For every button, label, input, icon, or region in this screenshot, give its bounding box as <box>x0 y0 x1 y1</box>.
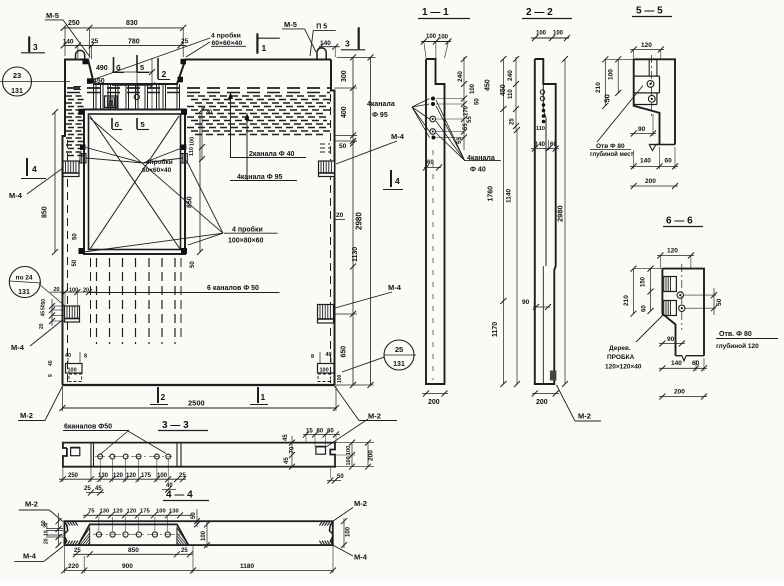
svg-text:175: 175 <box>140 509 150 515</box>
svg-text:1760: 1760 <box>488 186 495 202</box>
svg-text:220: 220 <box>68 563 79 570</box>
svg-text:25: 25 <box>91 38 99 45</box>
svg-text:3: 3 <box>33 42 38 52</box>
svg-text:Отв Ф 80: Отв Ф 80 <box>596 143 625 150</box>
svg-text:60: 60 <box>665 158 673 165</box>
svg-text:100: 100 <box>68 368 77 374</box>
svg-text:200: 200 <box>674 389 685 396</box>
svg-text:60: 60 <box>550 142 557 148</box>
svg-text:50: 50 <box>41 299 47 305</box>
svg-text:120: 120 <box>113 473 124 479</box>
svg-text:55: 55 <box>463 123 469 130</box>
svg-text:60×60×40: 60×60×40 <box>142 167 172 174</box>
svg-text:2 — 2: 2 — 2 <box>526 7 553 18</box>
svg-text:ПРОБКА: ПРОБКА <box>607 354 635 361</box>
svg-text:100: 100 <box>553 31 564 37</box>
svg-text:5 — 5: 5 — 5 <box>636 6 663 17</box>
svg-text:100: 100 <box>201 530 207 541</box>
svg-text:60: 60 <box>642 305 648 312</box>
svg-text:100: 100 <box>426 34 437 40</box>
svg-text:П 5: П 5 <box>316 23 327 30</box>
svg-text:50: 50 <box>41 304 47 310</box>
svg-text:830: 830 <box>126 20 138 27</box>
svg-text:55: 55 <box>457 137 463 144</box>
svg-text:50: 50 <box>339 143 347 150</box>
svg-text:6каналов Ф50: 6каналов Ф50 <box>64 424 112 431</box>
svg-text:50: 50 <box>191 512 197 519</box>
svg-text:100: 100 <box>346 446 352 455</box>
svg-text:175: 175 <box>141 473 152 479</box>
svg-text:140: 140 <box>63 39 74 46</box>
svg-text:110: 110 <box>536 126 545 132</box>
svg-text:200: 200 <box>536 399 548 406</box>
svg-text:200: 200 <box>428 399 440 406</box>
svg-text:5: 5 <box>140 63 144 72</box>
svg-text:1180: 1180 <box>240 563 254 570</box>
svg-text:Отв. Ф 80: Отв. Ф 80 <box>719 331 752 338</box>
svg-text:25: 25 <box>181 548 188 554</box>
svg-text:М-5: М-5 <box>284 20 297 29</box>
svg-text:250: 250 <box>68 20 80 27</box>
svg-text:2канала Ф 40: 2канала Ф 40 <box>249 151 295 158</box>
svg-text:2: 2 <box>162 69 167 79</box>
svg-text:3: 3 <box>345 39 350 49</box>
svg-text:9: 9 <box>48 374 54 377</box>
svg-text:45: 45 <box>283 434 289 441</box>
svg-text:55: 55 <box>467 116 473 123</box>
svg-text:850: 850 <box>128 547 139 554</box>
svg-text:8: 8 <box>84 354 87 360</box>
svg-text:М-2: М-2 <box>25 500 38 509</box>
svg-text:М-4: М-4 <box>9 191 23 200</box>
svg-text:4канала Ф 95: 4канала Ф 95 <box>237 174 283 181</box>
svg-text:240: 240 <box>457 71 464 82</box>
svg-text:50: 50 <box>603 94 612 102</box>
svg-text:глубиной 120: глубиной 120 <box>716 342 759 350</box>
svg-text:50: 50 <box>72 259 78 266</box>
svg-text:4: 4 <box>32 164 37 174</box>
svg-text:б: б <box>115 120 120 129</box>
svg-text:М-4: М-4 <box>23 552 37 561</box>
svg-text:1130: 1130 <box>352 247 359 262</box>
svg-text:140: 140 <box>640 158 651 165</box>
svg-text:780: 780 <box>128 38 140 45</box>
svg-text:20: 20 <box>39 323 45 329</box>
svg-text:Ф 95: Ф 95 <box>372 112 388 119</box>
svg-text:120×120×40: 120×120×40 <box>605 364 642 371</box>
svg-text:25: 25 <box>510 118 516 125</box>
svg-text:М-4: М-4 <box>354 553 368 562</box>
svg-text:130: 130 <box>100 509 110 515</box>
svg-text:50: 50 <box>716 298 723 306</box>
svg-text:10: 10 <box>44 530 50 536</box>
svg-text:850: 850 <box>187 196 194 208</box>
svg-text:6 каналов Ф 50: 6 каналов Ф 50 <box>207 285 259 292</box>
svg-text:100: 100 <box>190 137 196 146</box>
svg-text:40: 40 <box>48 360 54 366</box>
svg-text:20: 20 <box>44 538 50 544</box>
svg-text:50: 50 <box>337 474 344 480</box>
svg-text:4канала: 4канала <box>367 101 395 108</box>
svg-text:1: 1 <box>261 392 266 402</box>
svg-text:4пробки: 4пробки <box>146 158 173 166</box>
svg-text:6 — 6: 6 — 6 <box>666 216 693 227</box>
svg-text:Дерев.: Дерев. <box>609 345 631 352</box>
svg-text:б: б <box>116 63 121 72</box>
svg-text:4: 4 <box>395 176 400 186</box>
svg-text:120: 120 <box>127 509 137 515</box>
svg-text:120: 120 <box>667 248 678 255</box>
svg-text:170: 170 <box>464 105 470 116</box>
svg-text:300: 300 <box>341 70 348 82</box>
svg-text:150: 150 <box>641 276 647 287</box>
svg-text:140: 140 <box>535 142 546 148</box>
svg-text:50: 50 <box>41 520 47 526</box>
svg-text:глубиной мест: глубиной мест <box>590 151 633 158</box>
svg-text:1: 1 <box>262 43 267 53</box>
svg-text:2980: 2980 <box>355 212 364 230</box>
svg-text:25: 25 <box>74 548 81 554</box>
svg-text:200: 200 <box>368 450 375 461</box>
svg-text:450: 450 <box>500 84 507 96</box>
svg-text:М-5: М-5 <box>46 11 59 20</box>
svg-text:25: 25 <box>84 486 91 492</box>
svg-text:М-2: М-2 <box>368 412 381 421</box>
svg-text:М-4: М-4 <box>11 343 25 352</box>
svg-text:100: 100 <box>337 374 343 383</box>
svg-text:4 пробки: 4 пробки <box>211 31 241 39</box>
svg-text:90: 90 <box>667 336 675 343</box>
svg-text:25: 25 <box>181 38 189 45</box>
svg-text:23: 23 <box>13 71 21 80</box>
svg-text:4 — 4: 4 — 4 <box>166 490 193 501</box>
svg-text:45: 45 <box>284 457 290 464</box>
svg-text:по 24: по 24 <box>16 275 33 282</box>
svg-text:45: 45 <box>41 311 47 317</box>
svg-text:30: 30 <box>206 110 212 116</box>
svg-text:120: 120 <box>113 509 123 515</box>
svg-text:240: 240 <box>507 70 514 81</box>
svg-text:200: 200 <box>645 178 656 185</box>
svg-text:М-4: М-4 <box>391 132 405 141</box>
svg-text:131: 131 <box>18 289 30 296</box>
svg-text:130: 130 <box>98 473 109 479</box>
svg-text:100: 100 <box>536 31 547 37</box>
svg-text:100: 100 <box>470 83 476 94</box>
svg-text:3 — 3: 3 — 3 <box>162 420 189 431</box>
svg-text:450: 450 <box>485 79 492 91</box>
svg-text:100: 100 <box>157 473 168 479</box>
svg-text:25: 25 <box>395 345 403 354</box>
svg-text:100: 100 <box>608 69 615 80</box>
svg-text:75: 75 <box>88 509 95 515</box>
svg-text:850: 850 <box>42 206 49 218</box>
svg-text:490: 490 <box>96 65 108 72</box>
svg-text:50: 50 <box>475 98 481 105</box>
svg-text:8: 8 <box>311 354 314 360</box>
svg-text:2: 2 <box>161 392 166 402</box>
svg-text:60×60×40: 60×60×40 <box>212 40 243 47</box>
svg-text:2980: 2980 <box>556 205 565 222</box>
svg-text:М-4: М-4 <box>388 283 402 292</box>
svg-text:100×80×60: 100×80×60 <box>228 238 264 245</box>
svg-text:100: 100 <box>156 509 166 515</box>
svg-text:М-2: М-2 <box>354 499 367 508</box>
svg-text:90: 90 <box>638 126 646 133</box>
svg-text:100: 100 <box>346 456 352 465</box>
svg-text:40: 40 <box>326 352 332 358</box>
svg-text:131: 131 <box>11 88 23 95</box>
svg-text:50: 50 <box>73 233 79 240</box>
svg-text:М-2: М-2 <box>20 411 33 420</box>
svg-text:210: 210 <box>623 295 630 306</box>
svg-text:130: 130 <box>169 509 179 515</box>
svg-text:Ф 40: Ф 40 <box>470 167 486 174</box>
svg-text:100: 100 <box>346 526 352 537</box>
svg-text:120: 120 <box>126 473 137 479</box>
svg-text:400: 400 <box>341 106 348 118</box>
svg-text:100: 100 <box>438 34 449 40</box>
svg-text:900: 900 <box>122 563 133 570</box>
svg-text:2500: 2500 <box>188 399 205 408</box>
svg-text:70: 70 <box>290 446 296 453</box>
svg-text:50: 50 <box>190 261 196 268</box>
svg-text:25: 25 <box>179 473 186 479</box>
svg-text:250: 250 <box>68 473 79 479</box>
svg-text:1140: 1140 <box>506 189 513 203</box>
svg-text:110: 110 <box>508 89 514 99</box>
svg-text:1170: 1170 <box>492 322 499 337</box>
svg-text:1 — 1: 1 — 1 <box>422 7 449 18</box>
svg-text:20: 20 <box>336 212 344 219</box>
svg-text:450: 450 <box>93 78 105 85</box>
svg-text:140: 140 <box>671 360 682 367</box>
svg-text:100: 100 <box>320 368 329 374</box>
svg-text:120: 120 <box>641 42 652 49</box>
svg-text:4 пробки: 4 пробки <box>232 226 263 234</box>
svg-text:5: 5 <box>141 120 145 129</box>
svg-text:650: 650 <box>341 346 348 358</box>
svg-text:110: 110 <box>189 147 195 156</box>
svg-text:М-2: М-2 <box>578 412 591 421</box>
svg-text:131: 131 <box>393 361 405 368</box>
svg-text:90: 90 <box>522 299 530 306</box>
svg-text:210: 210 <box>595 82 602 93</box>
